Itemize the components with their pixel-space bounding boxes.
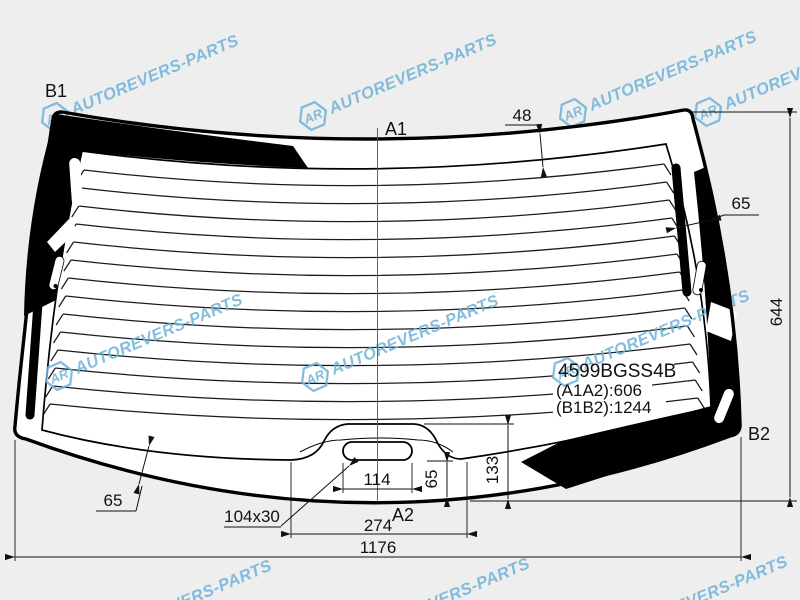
dim-notch-inner-height: 65	[422, 470, 441, 489]
dim-notch-height: 133	[483, 456, 502, 484]
label-a1: A1	[385, 119, 407, 139]
connector-right-pin	[699, 288, 703, 292]
label-b2: B2	[748, 424, 770, 444]
dim-hole-width: 114	[363, 470, 390, 489]
dim-hole-size: 104x30	[224, 507, 280, 526]
label-a2: A2	[392, 505, 414, 525]
connector-left-pin	[54, 284, 58, 288]
glass-diagram-page: ARAUTOREVERS-PARTSARAUTOREVERS-PARTSARAU…	[0, 0, 800, 600]
dim-bottom-left-band-width: 65	[104, 491, 123, 510]
dim-total-width: 1176	[360, 538, 397, 557]
dim-total-height: 644	[767, 298, 786, 326]
dim-top-band-width: 48	[513, 106, 532, 125]
label-b1: B1	[45, 81, 67, 101]
part-number: 4599BGSS4B	[558, 361, 676, 382]
diagram-canvas: ARAUTOREVERS-PARTSARAUTOREVERS-PARTSARAU…	[0, 0, 800, 600]
dim-notch-width: 274	[364, 516, 392, 535]
dim-right-band-width: 65	[732, 194, 751, 213]
part-b1b2-length: (B1B2):1244	[556, 398, 651, 417]
